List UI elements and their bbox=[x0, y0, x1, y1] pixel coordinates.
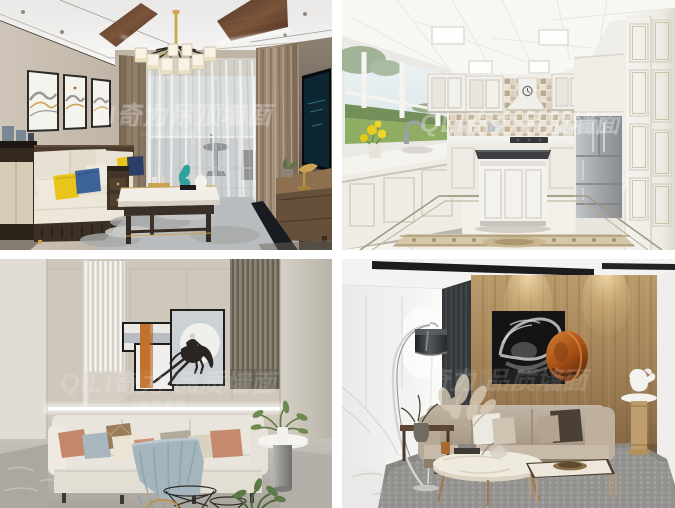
svg-text:QLI奇力吊顶墙面: QLI奇力吊顶墙面 bbox=[420, 110, 625, 138]
svg-text:LI奇力 品质墙面: LI奇力 品质墙面 bbox=[400, 367, 592, 395]
svg-text:品 质 空 间: 品 质 空 间 bbox=[140, 399, 186, 409]
svg-text:QILI奇力 品质墙面: QILI奇力 品质墙面 bbox=[60, 370, 281, 398]
svg-text:一 体 化 平 台: 一 体 化 平 台 bbox=[140, 130, 196, 140]
svg-text:LI奇力吊顶墙面: LI奇力吊顶墙面 bbox=[92, 102, 276, 130]
